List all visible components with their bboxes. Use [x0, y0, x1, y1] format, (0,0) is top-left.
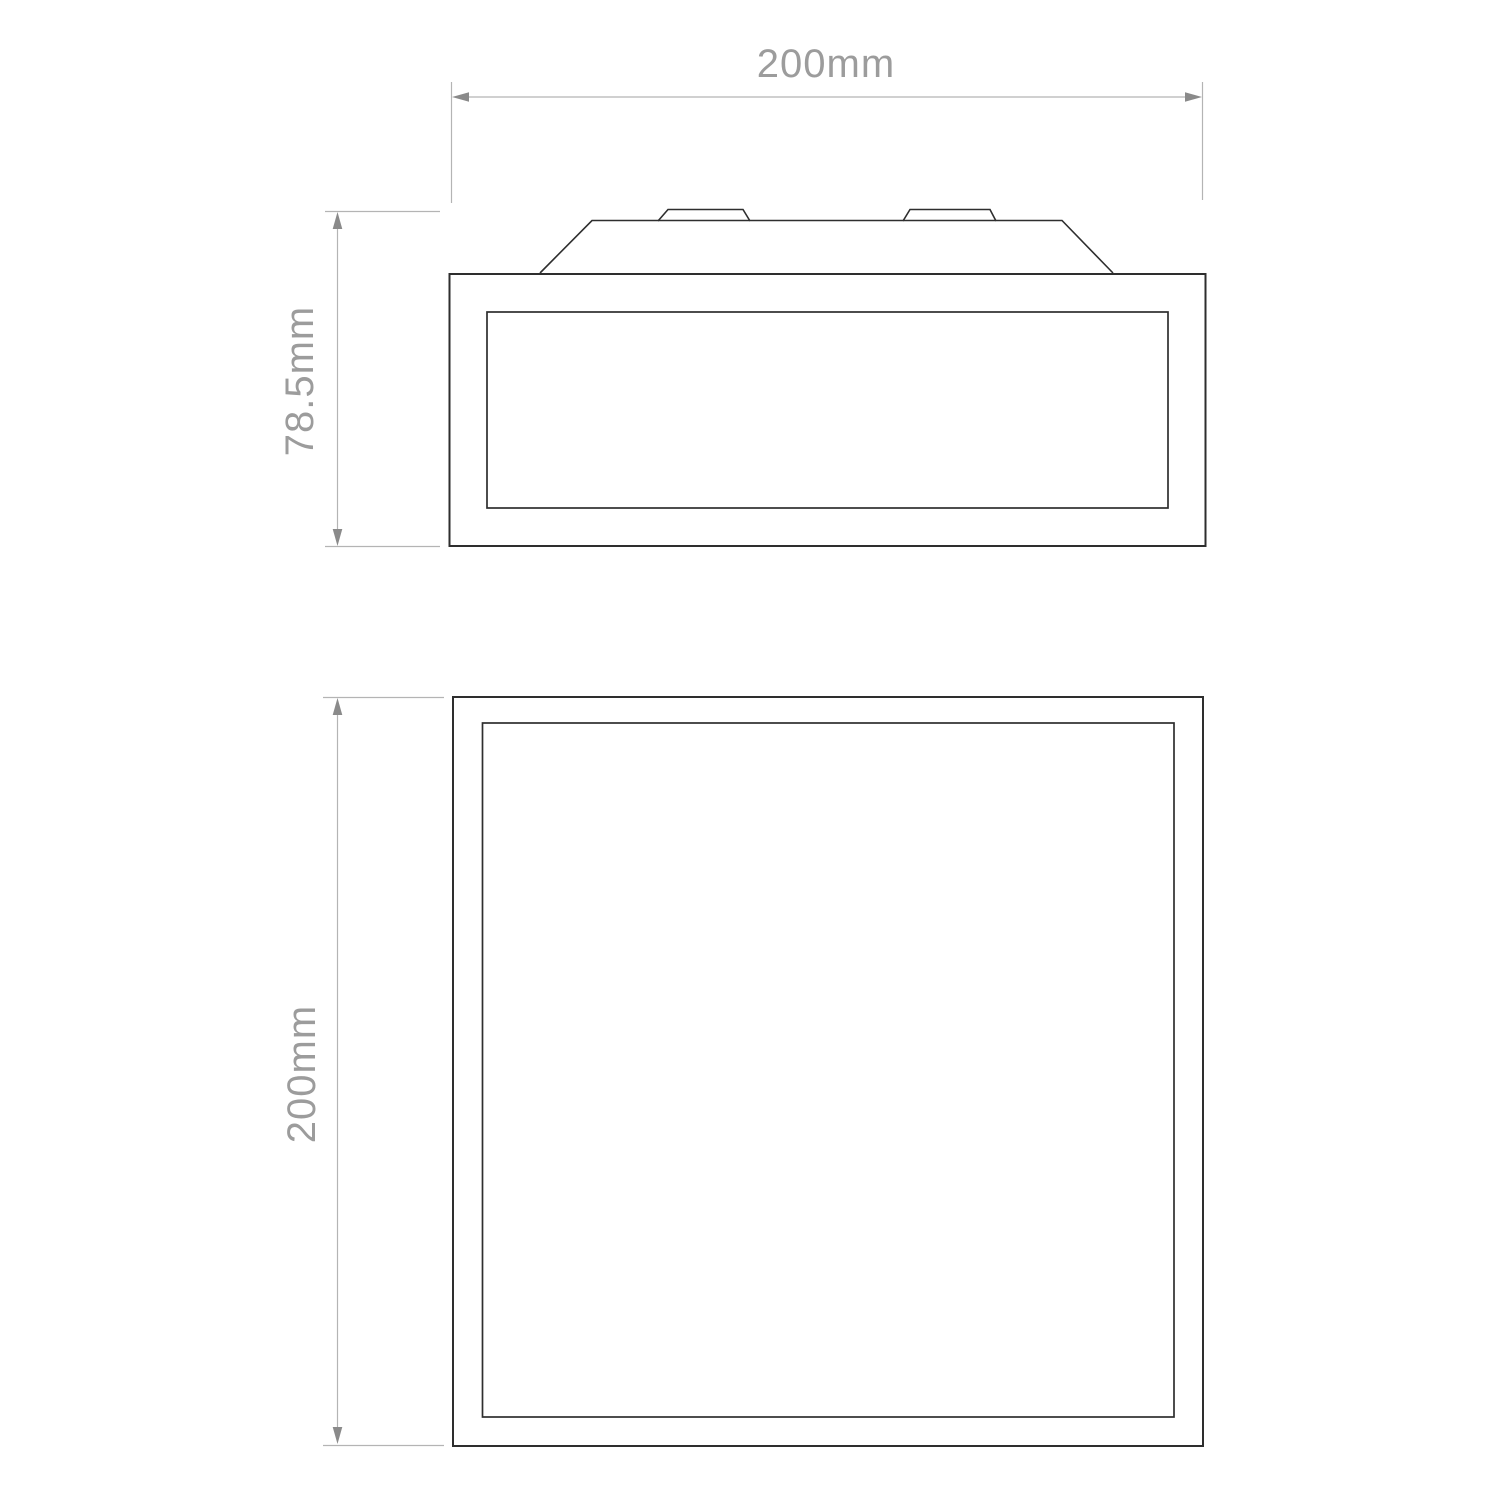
side-view [450, 210, 1206, 547]
front-view [453, 697, 1203, 1446]
dimension-lines [323, 82, 1203, 1446]
width-arrow-left-icon [452, 92, 469, 102]
height-dimension-label: 200mm [282, 1005, 322, 1143]
screw-boss-right [903, 210, 996, 222]
mounting-bracket [540, 221, 1113, 274]
width-arrow-right-icon [1185, 92, 1202, 102]
dimension-arrowheads [333, 92, 1202, 1444]
side-view-outer-frame [450, 274, 1206, 546]
depth-arrow-up-icon [333, 212, 343, 229]
drawing-linework [0, 0, 1500, 1500]
dimension-diagram: 200mm 78.5mm 200mm [0, 0, 1500, 1500]
side-view-diffuser-panel [487, 312, 1168, 508]
height-arrow-down-icon [333, 1427, 343, 1444]
screw-boss-left [658, 210, 750, 222]
front-view-outer-frame [453, 697, 1203, 1446]
depth-arrow-down-icon [333, 529, 343, 546]
front-view-diffuser-panel [483, 723, 1175, 1417]
height-arrow-up-icon [333, 698, 343, 715]
width-dimension-label: 200mm [757, 44, 895, 84]
depth-dimension-label: 78.5mm [280, 306, 320, 457]
